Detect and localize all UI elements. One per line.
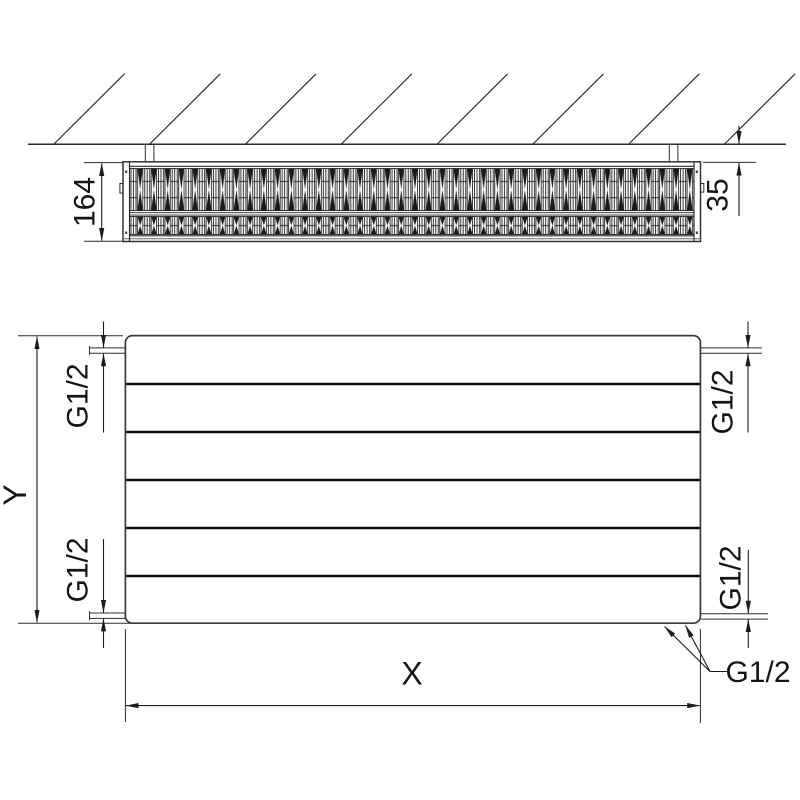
wall-section: [28, 74, 795, 144]
dim-height-label: Y: [0, 484, 33, 505]
hatch-line: [629, 74, 700, 144]
connection-label-top-left: G1/2: [62, 363, 95, 428]
mounting-bracket-right: [669, 145, 678, 163]
connection-label-top-right: G1/2: [707, 369, 740, 434]
connection-label-bottom-left: G1/2: [62, 537, 95, 602]
convector-fins: [130, 166, 695, 236]
technical-drawing: 164 35 Y X G1/: [0, 0, 800, 800]
dim-width: X: [125, 629, 700, 723]
hatch-line: [341, 74, 412, 144]
dim-depth-label: 164: [69, 177, 102, 227]
dim-width-label: X: [401, 656, 422, 692]
wall-hatching: [54, 74, 795, 144]
cap-rivet: [125, 171, 127, 174]
connection-dim-bottom-left: G1/2: [62, 537, 126, 648]
dim-depth: 164: [69, 163, 123, 242]
side-stub-left: [120, 184, 123, 194]
hatch-line: [54, 74, 125, 144]
hatch-line: [246, 74, 317, 144]
hatch-line: [533, 74, 604, 144]
cap-rivet: [696, 232, 698, 235]
cap-rivet: [125, 232, 127, 235]
connection-dim-bottom-right: G1/2: [701, 545, 768, 648]
connection-dim-top-left: G1/2: [62, 322, 126, 433]
radiator-top-view: [120, 145, 704, 242]
hatch-line: [437, 74, 508, 144]
bottom-connections-label: G1/2: [725, 656, 790, 689]
leader-arrow: [686, 626, 711, 672]
hatch-line: [725, 74, 796, 144]
hatch-line: [150, 74, 221, 144]
connection-label-bottom-right: G1/2: [715, 545, 748, 610]
radiator-front-view: [125, 336, 700, 624]
dim-wall-label: 35: [702, 178, 735, 211]
leader-arrow: [665, 627, 711, 672]
mounting-bracket-left: [145, 145, 154, 163]
cap-rivet: [696, 171, 698, 174]
connection-dim-top-right: G1/2: [701, 322, 762, 435]
bottom-connections-leader: G1/2: [665, 626, 791, 690]
